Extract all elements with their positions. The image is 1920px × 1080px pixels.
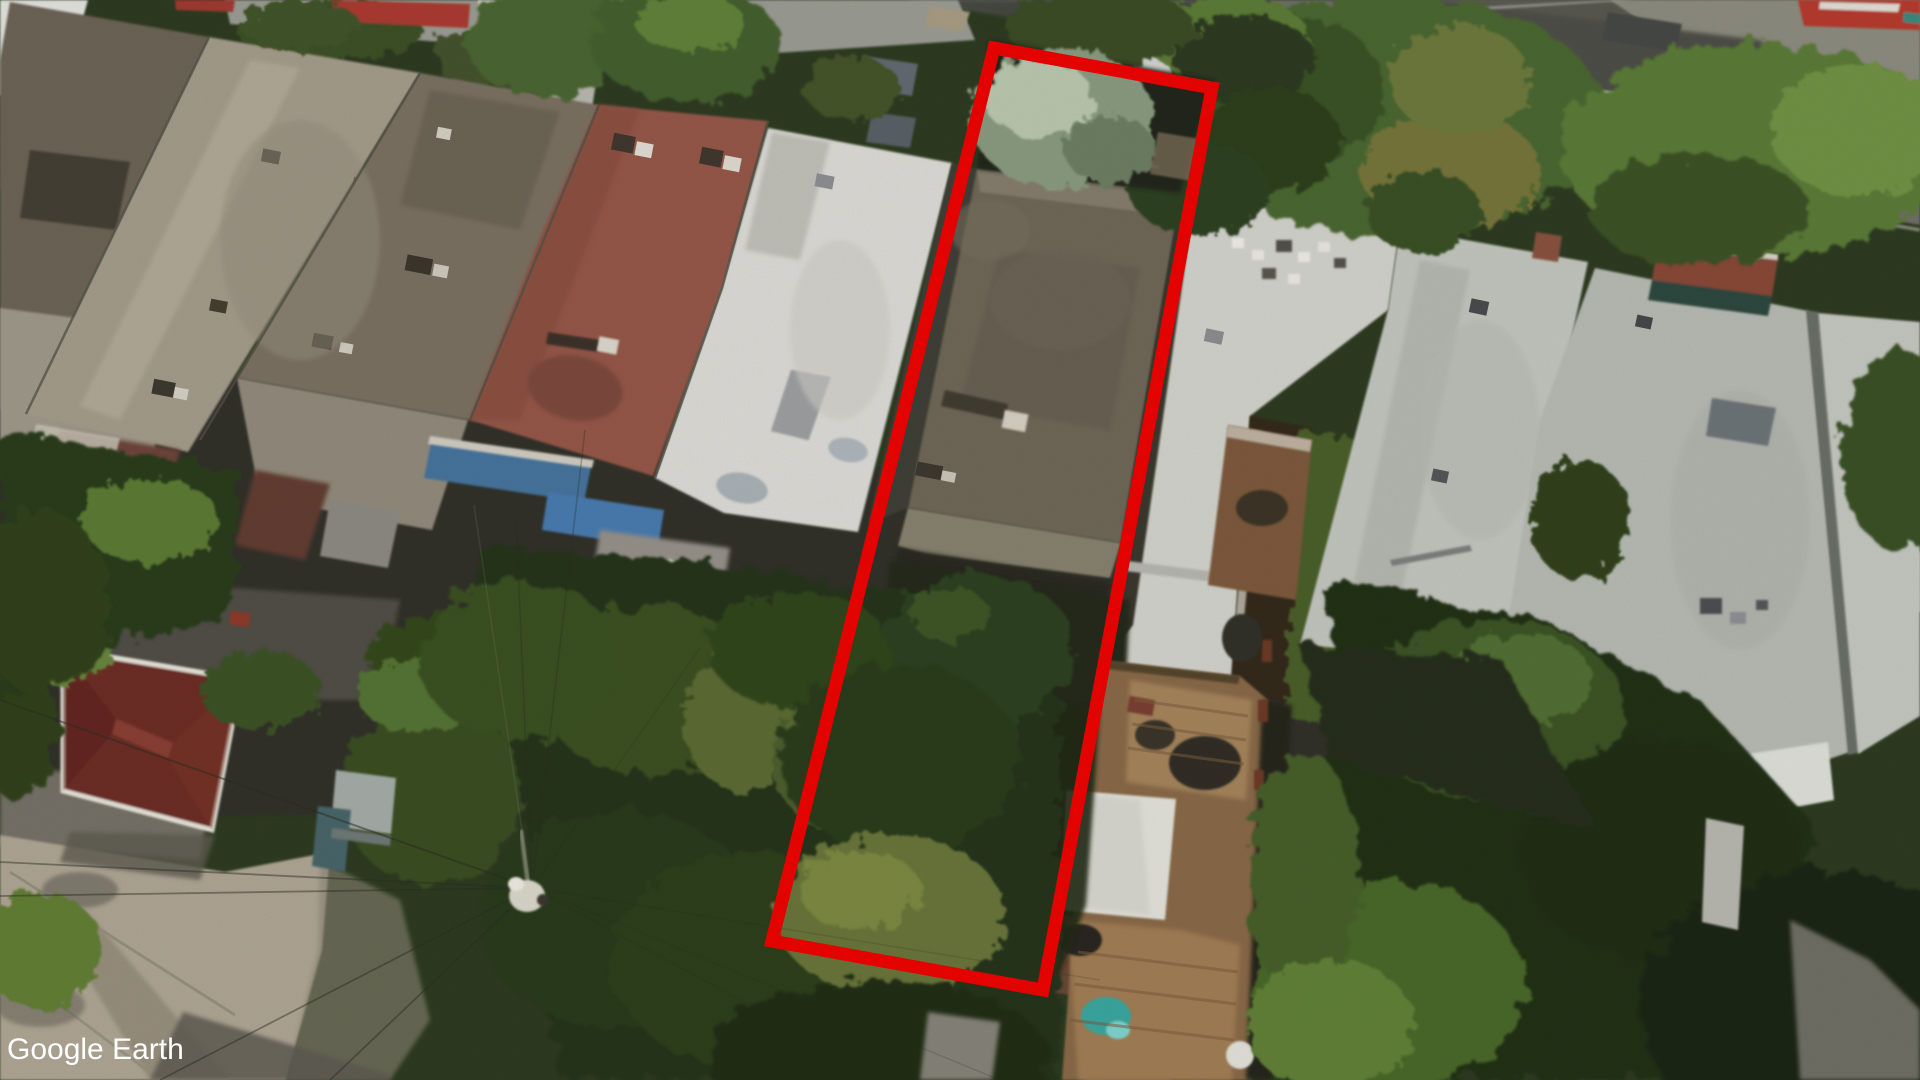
svg-text:Google Earth: Google Earth xyxy=(7,1033,184,1066)
